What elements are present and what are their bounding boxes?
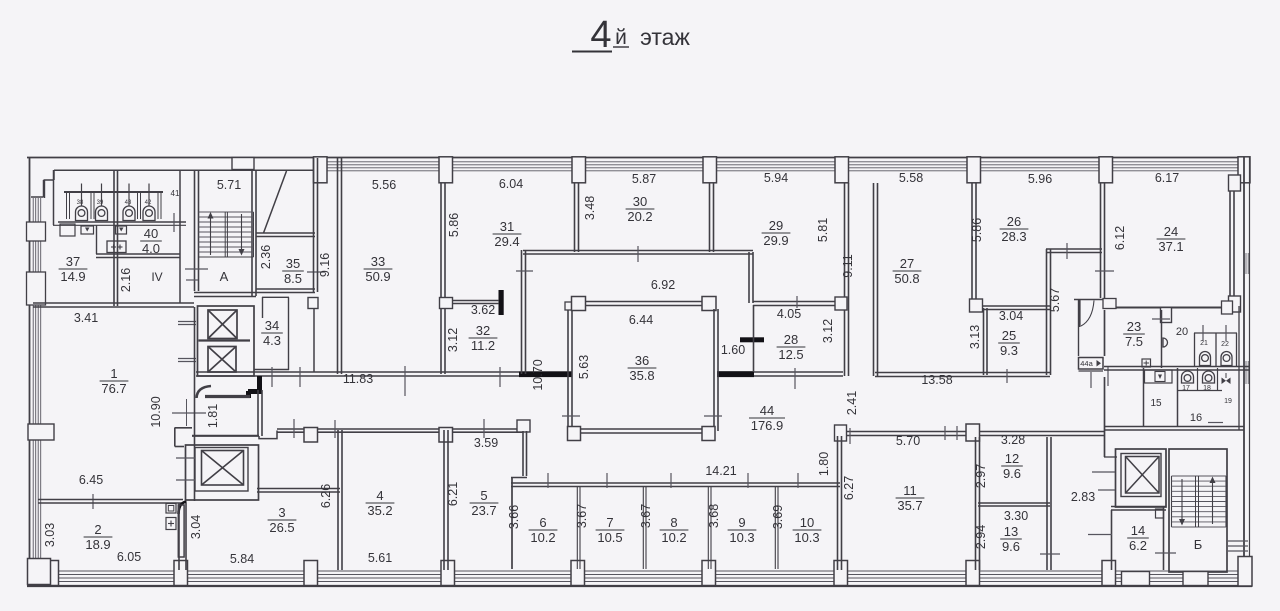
svg-text:10.2: 10.2 (661, 530, 686, 545)
svg-text:6.45: 6.45 (79, 473, 103, 487)
svg-text:18: 18 (1203, 385, 1211, 392)
svg-text:3.48: 3.48 (583, 196, 597, 220)
svg-text:5.67: 5.67 (1048, 288, 1062, 312)
svg-text:3.41: 3.41 (74, 311, 98, 325)
svg-text:50.8: 50.8 (894, 271, 919, 286)
svg-text:11.2: 11.2 (471, 338, 495, 353)
svg-text:4: 4 (376, 488, 383, 503)
svg-text:12: 12 (1005, 451, 1019, 466)
svg-text:3.30: 3.30 (1004, 509, 1028, 523)
svg-text:41: 41 (171, 189, 180, 198)
svg-text:10.90: 10.90 (149, 396, 163, 427)
svg-text:й: й (615, 26, 627, 49)
svg-text:7: 7 (606, 515, 613, 530)
svg-text:3.62: 3.62 (471, 303, 495, 317)
svg-text:21: 21 (1200, 340, 1208, 347)
svg-text:13.58: 13.58 (921, 373, 952, 387)
svg-text:10.70: 10.70 (531, 359, 545, 390)
svg-text:2.16: 2.16 (119, 268, 133, 292)
svg-text:8.5: 8.5 (284, 271, 302, 286)
svg-text:3.28: 3.28 (1001, 433, 1025, 447)
svg-text:3.67: 3.67 (575, 504, 589, 528)
svg-text:7.5: 7.5 (1125, 334, 1143, 349)
svg-text:19: 19 (1224, 398, 1232, 405)
svg-text:3.67: 3.67 (639, 504, 653, 528)
svg-text:13: 13 (1004, 524, 1018, 539)
svg-text:12.5: 12.5 (778, 347, 803, 362)
svg-text:28.3: 28.3 (1001, 229, 1026, 244)
svg-text:3.13: 3.13 (968, 325, 982, 349)
svg-text:37.1: 37.1 (1158, 239, 1183, 254)
svg-text:3.12: 3.12 (821, 319, 835, 343)
svg-text:3.59: 3.59 (474, 436, 498, 450)
svg-text:14.21: 14.21 (705, 464, 736, 478)
svg-text:17: 17 (1182, 385, 1190, 392)
svg-text:5.86: 5.86 (970, 218, 984, 242)
svg-text:23: 23 (1127, 319, 1141, 334)
svg-text:10.3: 10.3 (794, 530, 819, 545)
svg-text:42: 42 (145, 200, 152, 206)
svg-text:3.04: 3.04 (189, 515, 203, 539)
svg-text:2.94: 2.94 (974, 525, 988, 549)
svg-text:5.56: 5.56 (372, 178, 396, 192)
svg-text:37: 37 (66, 254, 80, 269)
svg-text:26.5: 26.5 (269, 520, 294, 535)
svg-text:9.3: 9.3 (1000, 343, 1018, 358)
svg-text:20.2: 20.2 (627, 209, 652, 224)
svg-text:5.63: 5.63 (577, 355, 591, 379)
svg-text:этаж: этаж (640, 24, 690, 50)
svg-text:3.68: 3.68 (707, 504, 721, 528)
svg-text:23.7: 23.7 (471, 503, 496, 518)
svg-text:35.2: 35.2 (367, 503, 392, 518)
svg-text:43: 43 (125, 200, 132, 206)
svg-text:3: 3 (278, 505, 285, 520)
svg-text:1.60: 1.60 (721, 343, 745, 357)
svg-text:9.11: 9.11 (841, 254, 855, 277)
svg-text:10.2: 10.2 (530, 530, 555, 545)
svg-text:176.9: 176.9 (751, 418, 784, 433)
svg-text:16: 16 (1190, 412, 1202, 424)
svg-text:35: 35 (286, 256, 300, 271)
svg-text:2.36: 2.36 (259, 245, 273, 269)
svg-text:9.6: 9.6 (1002, 539, 1020, 554)
svg-text:14.9: 14.9 (60, 269, 85, 284)
svg-text:39: 39 (97, 200, 104, 206)
svg-text:3.12: 3.12 (446, 328, 460, 352)
svg-text:Б: Б (1194, 537, 1203, 552)
svg-text:31: 31 (500, 219, 514, 234)
svg-text:44: 44 (760, 403, 774, 418)
svg-text:5.70: 5.70 (896, 434, 920, 448)
svg-text:5: 5 (480, 488, 487, 503)
svg-text:A: A (220, 269, 229, 284)
svg-text:29: 29 (769, 218, 783, 233)
svg-text:6.12: 6.12 (1113, 226, 1127, 250)
svg-text:5.86: 5.86 (447, 213, 461, 237)
svg-text:IV: IV (151, 270, 162, 284)
svg-text:3.69: 3.69 (771, 505, 785, 529)
svg-text:5.61: 5.61 (368, 551, 392, 565)
svg-text:33: 33 (371, 254, 385, 269)
svg-text:6.92: 6.92 (651, 278, 675, 292)
svg-text:3.03: 3.03 (43, 523, 57, 547)
svg-text:6.05: 6.05 (117, 550, 141, 564)
svg-text:5.87: 5.87 (632, 172, 656, 186)
svg-text:28: 28 (784, 332, 798, 347)
svg-text:36: 36 (635, 353, 649, 368)
svg-text:5.96: 5.96 (1028, 172, 1052, 186)
svg-text:40: 40 (144, 226, 158, 241)
svg-text:6.26: 6.26 (319, 484, 333, 508)
svg-text:30: 30 (633, 194, 647, 209)
svg-text:6.17: 6.17 (1155, 171, 1179, 185)
svg-text:34: 34 (265, 318, 279, 333)
svg-text:38: 38 (77, 200, 84, 206)
svg-text:29.9: 29.9 (763, 233, 788, 248)
svg-text:10.5: 10.5 (597, 530, 622, 545)
svg-text:26: 26 (1007, 214, 1021, 229)
svg-text:9.16: 9.16 (318, 253, 332, 277)
svg-text:3.66: 3.66 (507, 505, 521, 529)
svg-text:2.83: 2.83 (1071, 490, 1095, 504)
svg-text:22: 22 (1221, 341, 1229, 348)
svg-text:4: 4 (590, 14, 611, 56)
svg-text:6: 6 (539, 515, 546, 530)
svg-text:29.4: 29.4 (494, 234, 519, 249)
svg-text:15: 15 (1150, 398, 1162, 409)
svg-text:44а: 44а (1080, 359, 1093, 368)
svg-text:5.94: 5.94 (764, 171, 788, 185)
svg-text:6.21: 6.21 (446, 482, 460, 506)
svg-text:8: 8 (670, 515, 677, 530)
svg-text:5.84: 5.84 (230, 552, 254, 566)
svg-text:2.41: 2.41 (845, 391, 859, 415)
svg-text:2.97: 2.97 (974, 464, 988, 488)
svg-text:25: 25 (1002, 328, 1016, 343)
svg-text:18.9: 18.9 (85, 537, 110, 552)
svg-text:4.3: 4.3 (263, 333, 281, 348)
svg-text:24: 24 (1164, 224, 1178, 239)
svg-text:5.81: 5.81 (816, 218, 830, 242)
svg-text:6.27: 6.27 (842, 476, 856, 500)
svg-text:2: 2 (94, 522, 101, 537)
svg-text:5.71: 5.71 (217, 178, 241, 192)
svg-text:50.9: 50.9 (365, 269, 390, 284)
svg-text:11.83: 11.83 (343, 372, 373, 386)
svg-text:3.04: 3.04 (999, 309, 1023, 323)
svg-text:4.05: 4.05 (777, 307, 801, 321)
svg-text:20: 20 (1176, 326, 1188, 338)
svg-text:10.3: 10.3 (729, 530, 754, 545)
svg-text:1: 1 (110, 366, 117, 381)
svg-text:6.2: 6.2 (1129, 538, 1147, 553)
svg-text:27: 27 (900, 256, 914, 271)
svg-text:35.7: 35.7 (897, 498, 922, 513)
svg-text:6.44: 6.44 (629, 313, 653, 327)
svg-text:6.04: 6.04 (499, 177, 523, 191)
svg-text:32: 32 (476, 323, 490, 338)
svg-text:35.8: 35.8 (629, 368, 654, 383)
svg-text:9: 9 (738, 515, 745, 530)
svg-text:11: 11 (903, 483, 917, 498)
svg-text:9.6: 9.6 (1003, 466, 1021, 481)
svg-text:14: 14 (1131, 523, 1145, 538)
svg-text:76.7: 76.7 (101, 381, 126, 396)
svg-text:1.81: 1.81 (206, 404, 220, 428)
svg-text:5.58: 5.58 (899, 171, 923, 185)
svg-text:1.80: 1.80 (817, 452, 831, 476)
svg-text:10: 10 (800, 515, 814, 530)
